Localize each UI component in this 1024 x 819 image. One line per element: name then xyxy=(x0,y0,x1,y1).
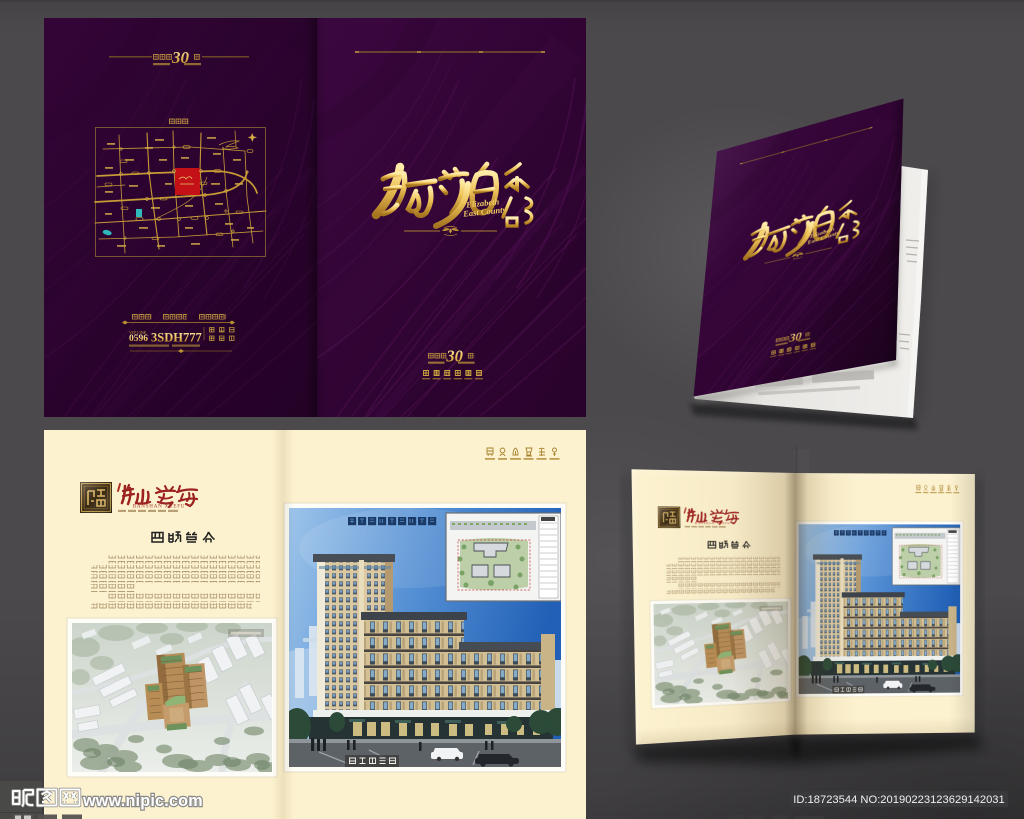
svg-text:ID:18723544 NO:201902231236291: ID:18723544 NO:20190223123629142031 xyxy=(793,794,1005,806)
svg-text:www.nipic.com: www.nipic.com xyxy=(82,792,203,810)
